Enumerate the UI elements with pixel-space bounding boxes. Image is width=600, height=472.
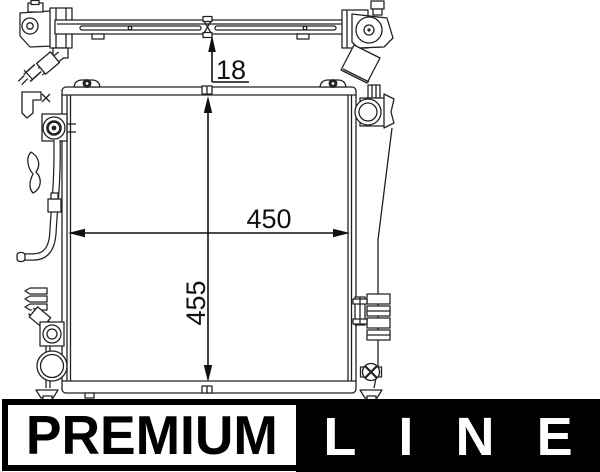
radiator-product-drawing: 18 450 455 LINE PREMIUM: [0, 0, 600, 472]
radiator-top-view: [20, 1, 393, 84]
radiator-front-view: [17, 79, 394, 400]
premium-label: PREMIUM: [26, 408, 278, 463]
right-tank-fittings: [353, 85, 394, 400]
inlet-pipe: [355, 94, 394, 128]
filler-neck: [341, 45, 380, 83]
dim-455-label: 455: [181, 280, 211, 325]
top-view-crossmember-bar: [55, 17, 360, 40]
spring-clip: [28, 152, 40, 193]
outlet-port: [37, 351, 67, 381]
technical-drawing: 18 450 455: [0, 0, 600, 400]
dim-18-label: 18: [216, 55, 246, 85]
premium-line-banner: LINE PREMIUM: [0, 399, 600, 472]
line-label: LINE: [323, 408, 600, 464]
core: [62, 79, 356, 398]
top-view-right-bracket: [341, 1, 393, 83]
top-view-left-bracket: [20, 1, 72, 84]
premium-badge: PREMIUM: [2, 399, 302, 471]
dim-450-label: 450: [246, 204, 291, 234]
dimension-18: 18: [208, 35, 249, 85]
line-band: LINE: [296, 399, 600, 472]
